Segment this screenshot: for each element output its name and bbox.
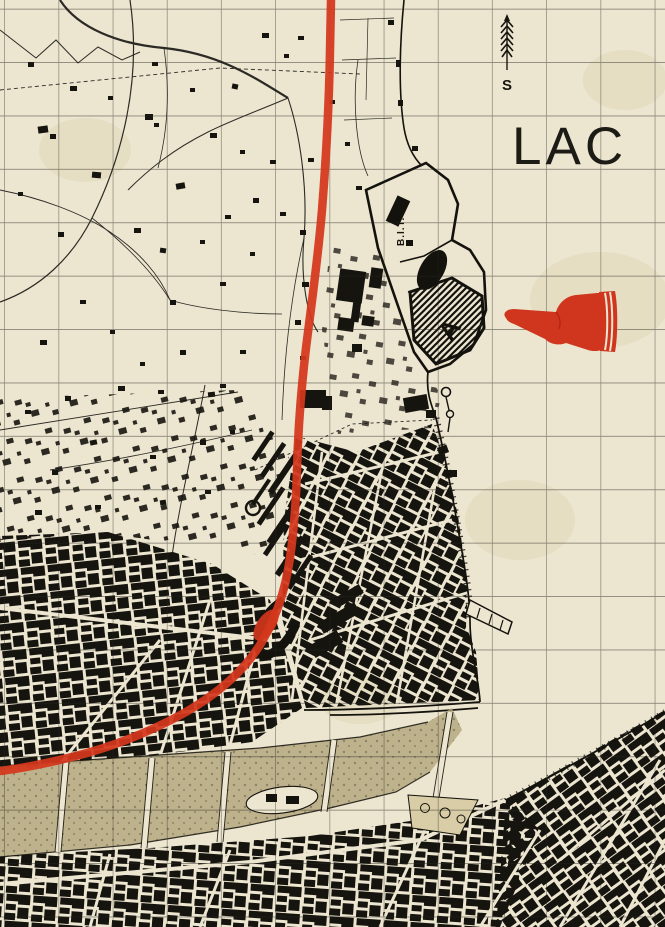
lake-label: LAC	[512, 117, 627, 176]
north-arrow-label: S	[502, 77, 512, 94]
scanned-map-page: B B.I.T. A	[0, 0, 665, 927]
map-canvas: B B.I.T. A	[0, 0, 665, 927]
